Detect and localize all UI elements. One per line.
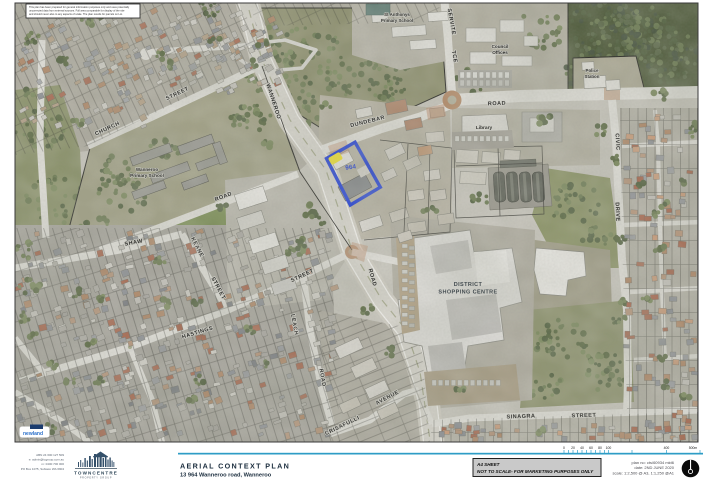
svg-text:0: 0 (563, 446, 565, 450)
svg-text:newland: newland (23, 431, 43, 437)
svg-text:13 964 Wanneroo road, Wanneroo: 13 964 Wanneroo road, Wanneroo (180, 472, 272, 478)
svg-text:40: 40 (580, 446, 584, 450)
svg-text:60: 60 (589, 446, 593, 450)
svg-text:m: 0400 700 000: m: 0400 700 000 (41, 462, 64, 466)
svg-text:AERIAL CONTEXT PLAN: AERIAL CONTEXT PLAN (180, 462, 290, 471)
svg-text:uncorrected data from external: uncorrected data from external sources. … (29, 9, 125, 13)
svg-text:500m: 500m (689, 446, 698, 450)
svg-text:This plan has been prepared fo: This plan has been prepared for general … (29, 5, 130, 9)
svg-text:A4 SHEET: A4 SHEET (476, 462, 501, 467)
svg-text:and should never also to any a: and should never also to any aspects of … (29, 12, 123, 16)
svg-text:PO Box 1075, Subiaco WA 6904: PO Box 1075, Subiaco WA 6904 (21, 467, 65, 471)
svg-text:400: 400 (664, 446, 670, 450)
svg-text:date: 2ND JUNE 2020: date: 2ND JUNE 2020 (634, 465, 674, 470)
svg-text:20: 20 (571, 446, 575, 450)
svg-text:100: 100 (606, 446, 612, 450)
svg-text:e: admin@tcgroup.com.au: e: admin@tcgroup.com.au (29, 458, 65, 462)
svg-text:ABN 24 600 127 509: ABN 24 600 127 509 (36, 453, 64, 457)
svg-text:80: 80 (598, 446, 602, 450)
svg-text:TOWNCENTRE: TOWNCENTRE (74, 471, 118, 476)
svg-text:NOT TO SCALE- FOR MARKETING PU: NOT TO SCALE- FOR MARKETING PURPOSES ONL… (477, 469, 594, 474)
svg-text:scale: 1:2,500 @ A3, 1:1,250 @: scale: 1:2,500 @ A3, 1:1,250 @A1 (613, 471, 675, 476)
svg-text:PROPERTY GROUP: PROPERTY GROUP (80, 477, 112, 480)
